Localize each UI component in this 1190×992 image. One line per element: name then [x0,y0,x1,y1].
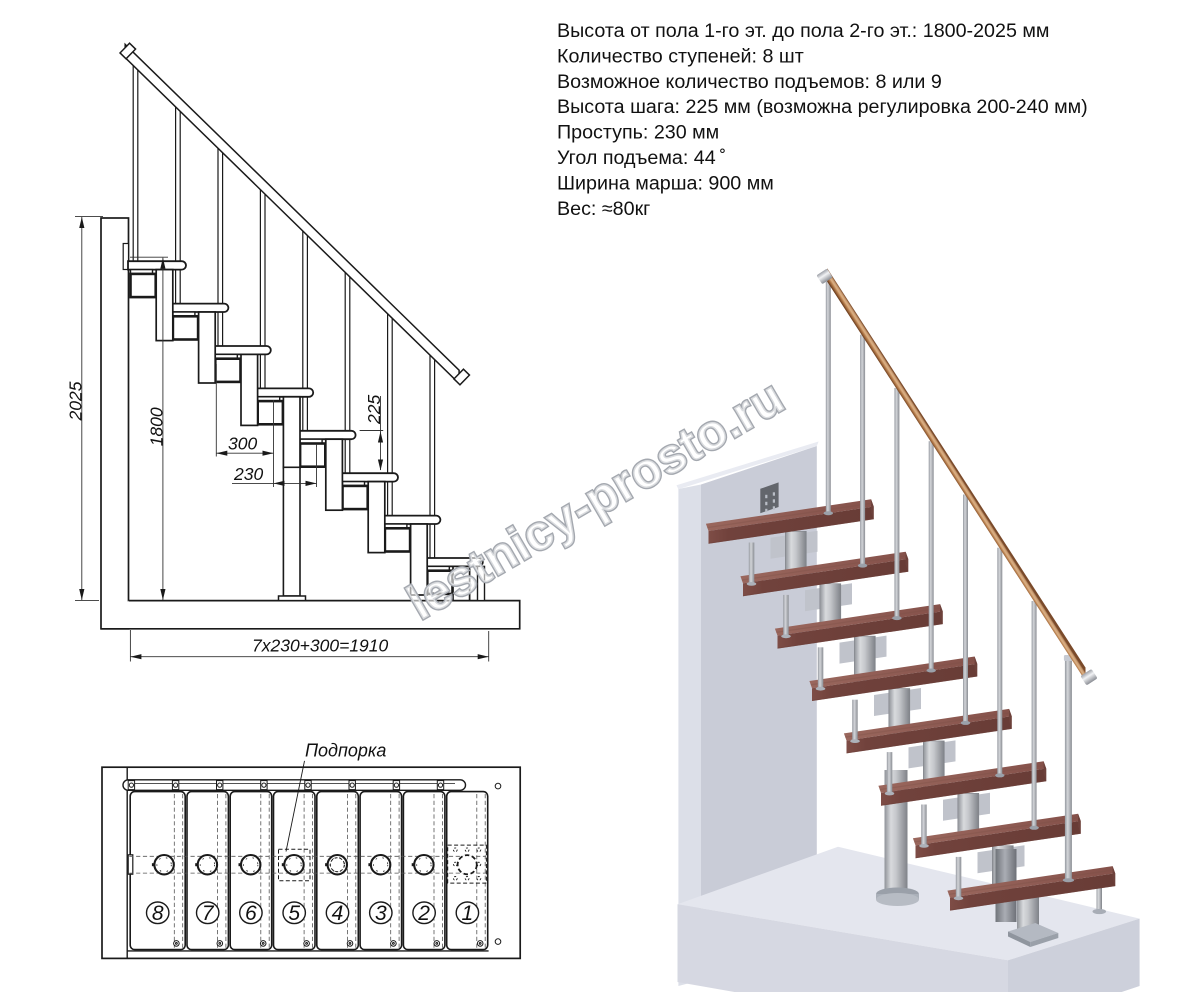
svg-text:7x230+300=1910: 7x230+300=1910 [252,636,389,656]
svg-text:Возможное количество подъемов:: Возможное количество подъемов: 8 или 9 [557,71,942,93]
svg-text:8: 8 [152,902,164,925]
svg-text:2: 2 [417,902,430,925]
svg-text:4: 4 [332,902,344,925]
svg-text:1800: 1800 [147,407,167,446]
svg-text:2025: 2025 [65,381,85,421]
svg-text:Высота шага: 225 мм (возможна: Высота шага: 225 мм (возможна регулировк… [557,96,1088,118]
svg-text:230: 230 [233,464,263,484]
svg-text:Высота от пола 1-го эт. до пол: Высота от пола 1-го эт. до пола 2-го эт.… [557,20,1049,42]
svg-text:6: 6 [245,902,257,925]
svg-text:3: 3 [375,902,387,925]
svg-text:1: 1 [462,902,474,925]
svg-text:Ширина марша: 900 мм: Ширина марша: 900 мм [557,172,774,194]
svg-text:225: 225 [364,395,384,425]
svg-text:Подпорка: Подпорка [305,741,386,761]
svg-text:7: 7 [202,902,215,925]
svg-text:5: 5 [288,902,300,925]
svg-text:Угол подъема: 44 ˚: Угол подъема: 44 ˚ [557,147,726,169]
svg-text:300: 300 [228,434,257,454]
svg-text:Вес: ≈80кг: Вес: ≈80кг [557,198,650,220]
svg-text:Количество ступеней: 8 шт: Количество ступеней: 8 шт [557,45,804,67]
svg-text:Проступь: 230 мм: Проступь: 230 мм [557,122,719,144]
